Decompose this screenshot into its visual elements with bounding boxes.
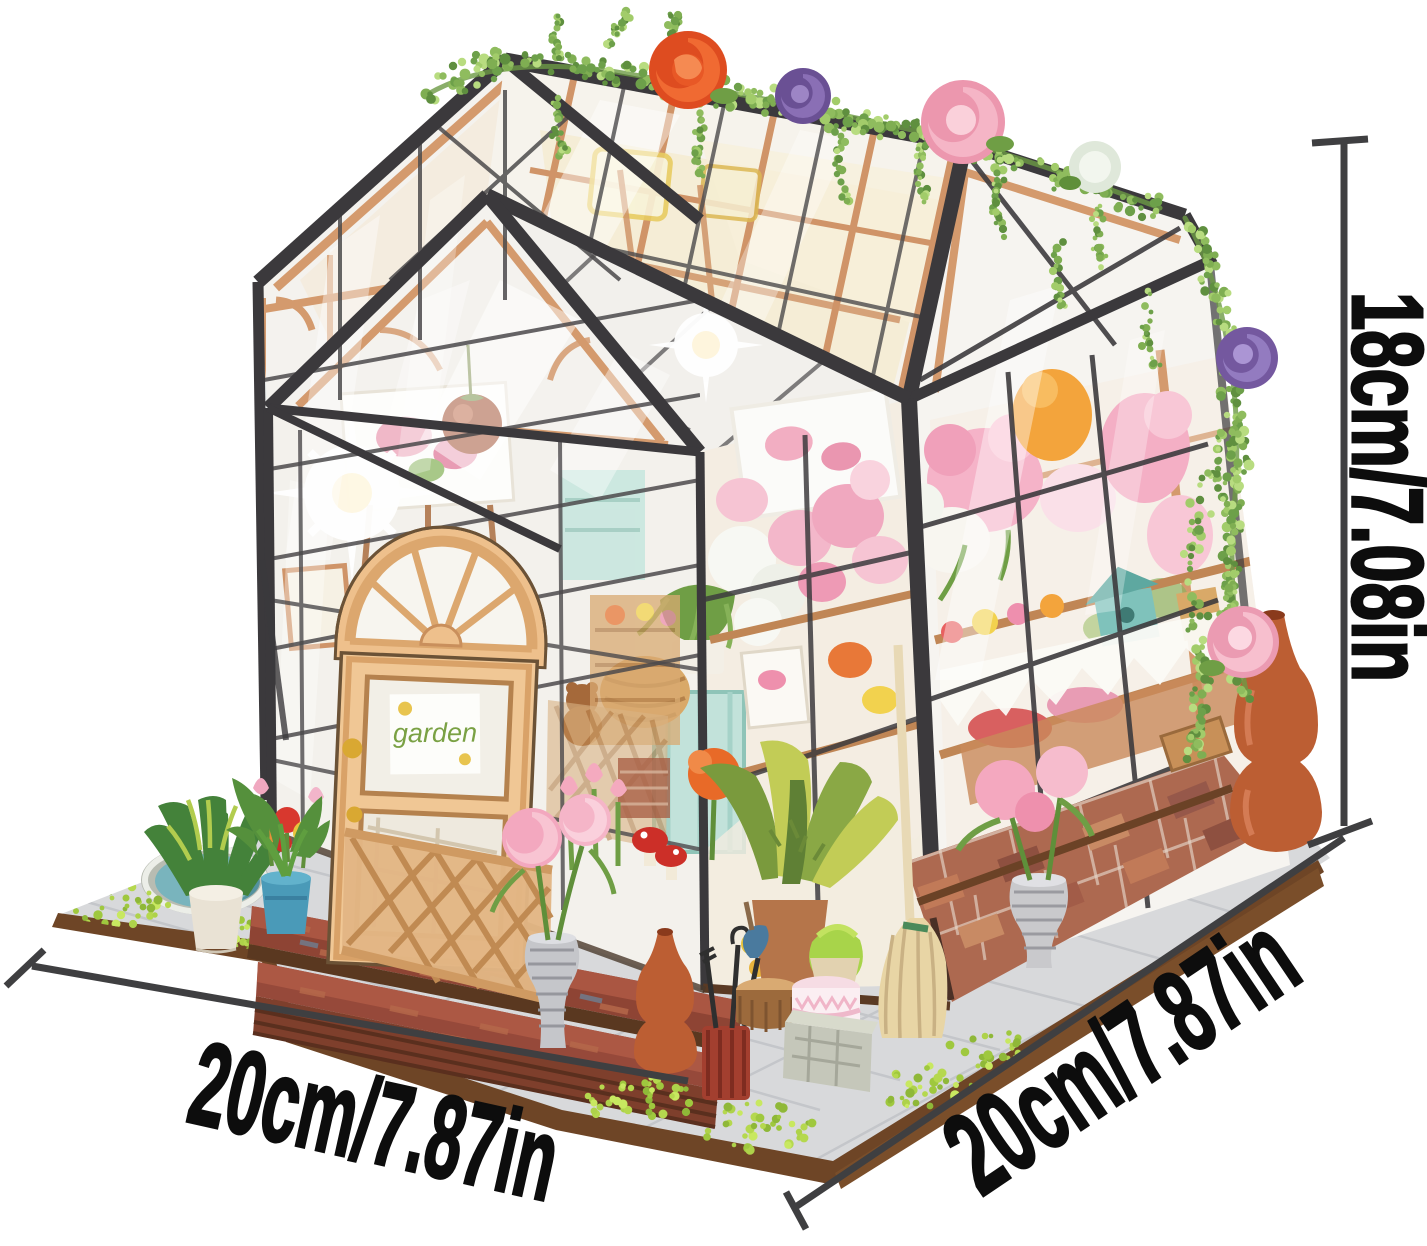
svg-text:garden: garden: [393, 718, 477, 749]
svg-text:18cm/7.08in: 18cm/7.08in: [1331, 292, 1427, 682]
